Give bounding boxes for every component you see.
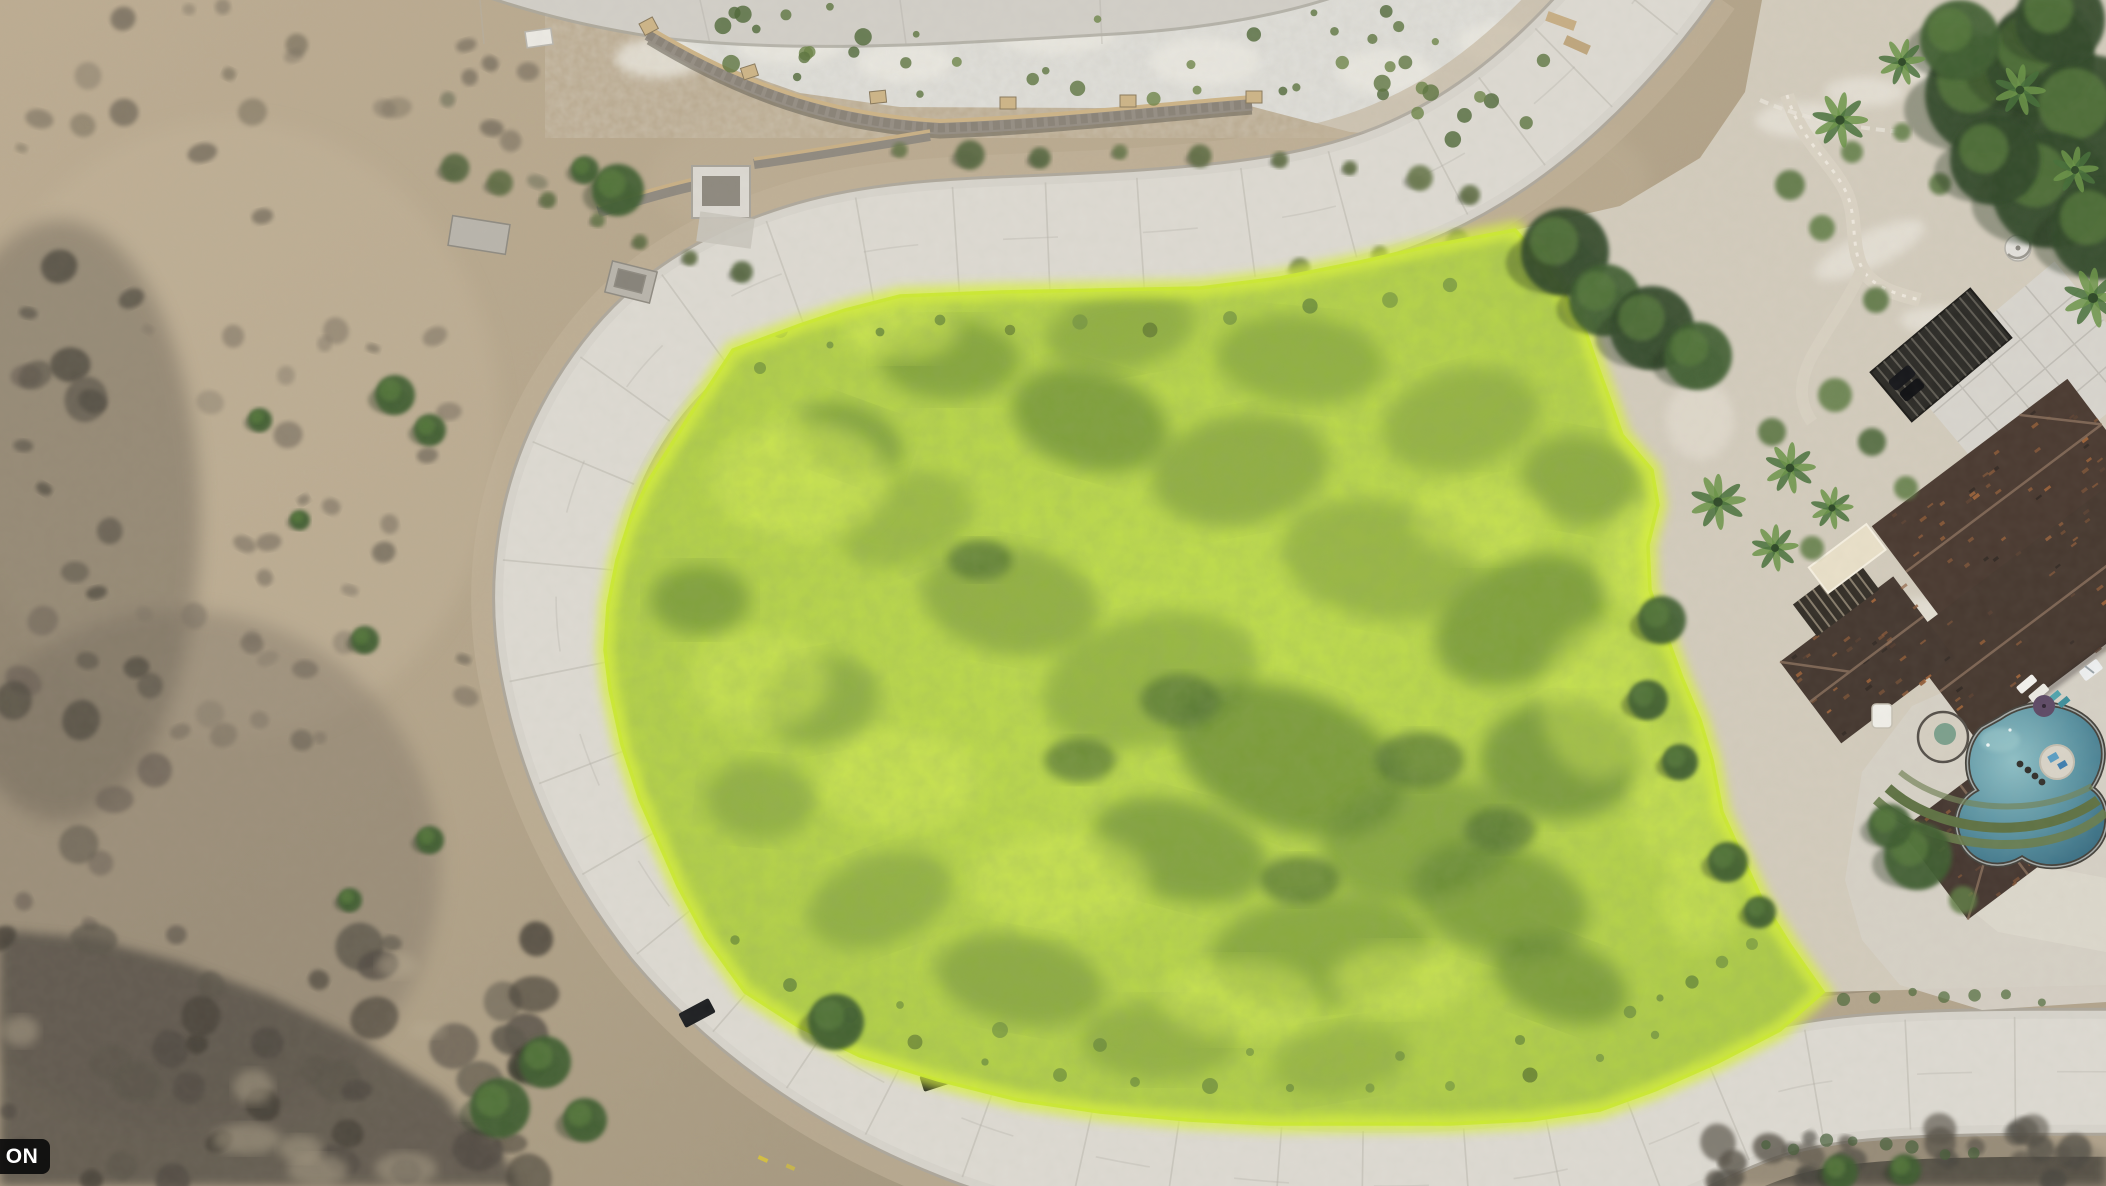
aerial-photo: ON <box>0 0 2106 1186</box>
photo-grain <box>0 0 2106 1186</box>
watermark-badge: ON <box>0 1139 50 1174</box>
aerial-photo-canvas <box>0 0 2106 1186</box>
watermark-text: ON <box>6 1145 39 1168</box>
